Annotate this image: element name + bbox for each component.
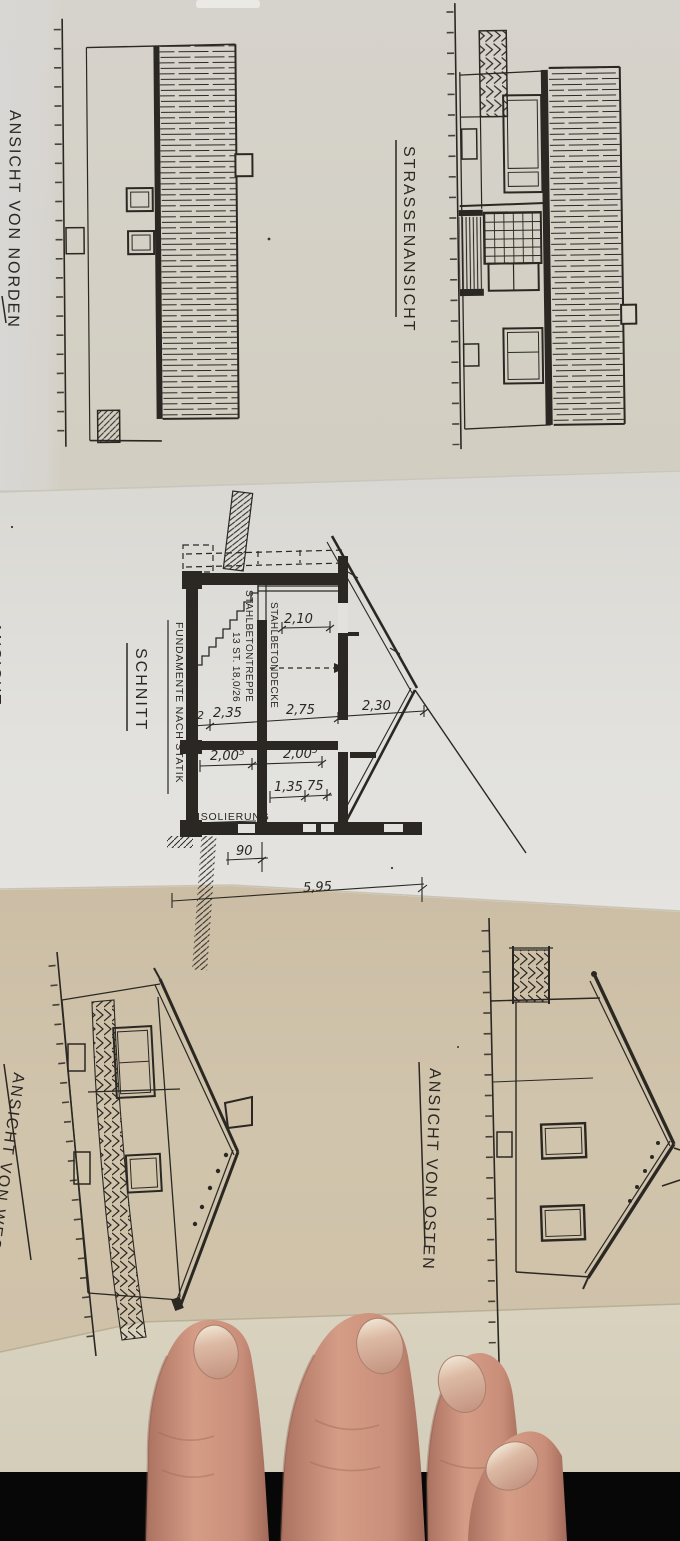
label-strassenansicht: STRASSENANSICHT: [400, 146, 417, 332]
stair-note-2: 13 ST. 18,0/26: [230, 632, 241, 702]
drawing-canvas: STAHLBETONTREPPE 13 ST. 18,0/26 STAHLBET…: [0, 0, 680, 1541]
roof-hatch: [549, 67, 624, 425]
foundation-note: FUNDAMENTE NACH STATIK: [173, 622, 185, 783]
ground-hatch: [167, 836, 193, 848]
label-ansicht-von-norden: ANSICHT VON NORDEN: [4, 110, 23, 329]
window-sill: [348, 632, 359, 636]
pergola: [509, 946, 553, 1004]
window-opening: [338, 603, 348, 633]
dim-75: 75: [307, 779, 324, 794]
dim-2-10: 2,10: [284, 612, 313, 627]
dim-2-30: 2,30: [362, 699, 391, 714]
dim-1-35: 1,35: [274, 780, 303, 795]
stair-note: STAHLBETONTREPPE: [243, 590, 254, 702]
window-opening: [338, 720, 348, 752]
dim-5-95: 5,95: [303, 879, 333, 895]
chimney: [235, 154, 252, 176]
balcony-railing-bars: [459, 217, 484, 289]
dim-12: 12: [190, 709, 204, 722]
chimney: [621, 305, 636, 324]
base-chimney-hatched: [98, 410, 120, 442]
dim-90: 90: [236, 844, 253, 859]
edge-partial-label: ANSICHT: [0, 622, 3, 706]
insulation-note: ISOLIERUNG: [197, 811, 270, 823]
right-wall: [338, 556, 348, 835]
left-wall: [186, 573, 198, 836]
paper-top-notch: [196, 0, 260, 8]
chimney: [225, 1097, 252, 1128]
label-schnitt: SCHNITT: [132, 648, 149, 731]
window-sill: [350, 752, 376, 758]
dim-2-75: 2,75: [286, 703, 315, 718]
ceiling-note: STAHLBETONDECKE: [268, 602, 279, 708]
photo-of-architectural-drawing: STAHLBETONTREPPE 13 ST. 18,0/26 STAHLBET…: [0, 0, 680, 1541]
dim-2-35: 2,35: [213, 706, 242, 721]
roof-hatch: [159, 44, 238, 419]
